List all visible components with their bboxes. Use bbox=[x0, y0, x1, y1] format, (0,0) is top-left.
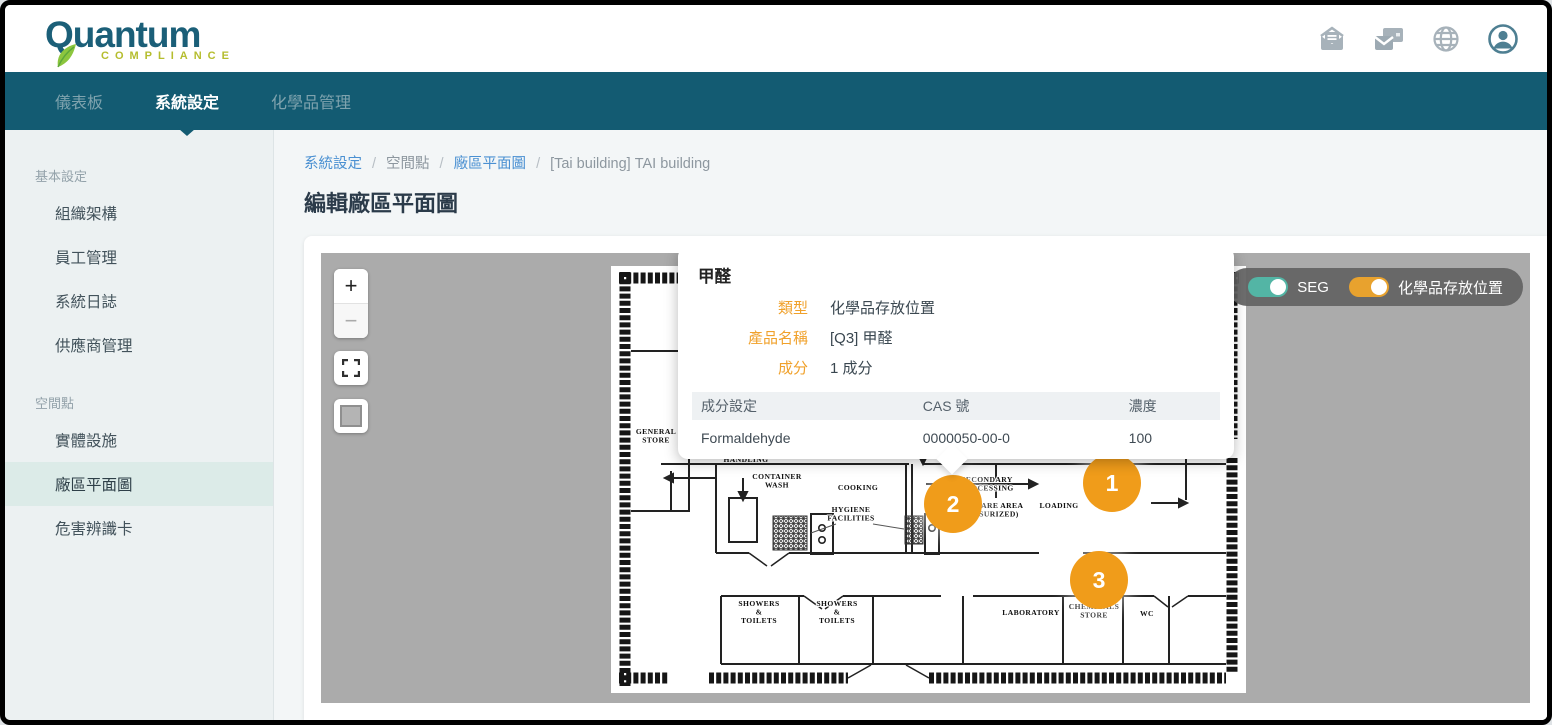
ingredient-table: 成分設定CAS 號濃度 Formaldehyde0000050-00-0100 bbox=[692, 392, 1220, 456]
breadcrumb-item: 空間點 bbox=[386, 156, 430, 172]
map-marker-1[interactable]: 1 bbox=[1083, 454, 1141, 512]
sidebar-item-組織架構[interactable]: 組織架構 bbox=[5, 191, 273, 235]
account-icon[interactable] bbox=[1487, 23, 1519, 55]
top-header: Quantum COMPLIANCE bbox=[5, 5, 1547, 72]
breadcrumb-item[interactable]: 系統設定 bbox=[304, 156, 362, 172]
main-content: 系統設定/空間點/廠區平面圖/[Tai building] TAI buildi… bbox=[274, 130, 1547, 720]
quantum-logo[interactable]: Quantum COMPLIANCE bbox=[45, 16, 235, 62]
zoom-in-button[interactable]: + bbox=[334, 269, 368, 303]
breadcrumb-separator: / bbox=[440, 156, 444, 172]
breadcrumb-separator: / bbox=[372, 156, 376, 172]
popup-field-label: 產品名稱 bbox=[698, 327, 808, 348]
table-header-cell: CAS 號 bbox=[914, 396, 1120, 416]
table-cell: 100 bbox=[1120, 430, 1220, 446]
toggle-switch[interactable] bbox=[1349, 277, 1389, 297]
layer-toggle-化學品存放位置[interactable]: 化學品存放位置 bbox=[1349, 277, 1503, 298]
room-label: COOKING bbox=[838, 483, 878, 492]
popup-field-value: 1 成分 bbox=[830, 357, 1220, 378]
globe-icon[interactable] bbox=[1431, 24, 1461, 54]
room-label: CONTAINERWASH bbox=[752, 472, 802, 490]
room-label: SHOWERS&TOILETS bbox=[816, 599, 857, 625]
fullscreen-icon bbox=[342, 359, 360, 377]
sidebar-item-實體設施[interactable]: 實體設施 bbox=[5, 418, 273, 462]
sidebar-item-危害辨識卡[interactable]: 危害辨識卡 bbox=[5, 506, 273, 550]
toggle-switch[interactable] bbox=[1248, 277, 1288, 297]
popup-title: 甲醛 bbox=[698, 263, 1220, 287]
sidebar-section-label: 空間點 bbox=[5, 393, 273, 418]
page-header-band: 系統設定/空間點/廠區平面圖/[Tai building] TAI buildi… bbox=[274, 130, 1547, 218]
nav-item-系統設定[interactable]: 系統設定 bbox=[129, 72, 245, 130]
table-cell: 0000050-00-0 bbox=[914, 430, 1120, 446]
fullscreen-button[interactable] bbox=[334, 351, 368, 385]
room-label: SHOWERS&TOILETS bbox=[738, 599, 779, 625]
popup-field-label: 類型 bbox=[698, 297, 808, 318]
breadcrumb-item: [Tai building] TAI building bbox=[550, 156, 710, 172]
ingredient-table-header: 成分設定CAS 號濃度 bbox=[692, 392, 1220, 420]
map-viewport[interactable]: GENERALSTOREHANDLINGCONTAINERWASHCOOKING… bbox=[321, 253, 1530, 703]
popup-field-value: [Q3] 甲醛 bbox=[830, 327, 1220, 348]
app-window: Quantum COMPLIANCE bbox=[0, 0, 1552, 725]
extent-icon bbox=[340, 405, 362, 427]
breadcrumb: 系統設定/空間點/廠區平面圖/[Tai building] TAI buildi… bbox=[304, 152, 1547, 173]
room-label: GENERALSTORE bbox=[636, 427, 676, 445]
room-label: LOADING bbox=[1039, 501, 1078, 510]
sidebar-item-供應商管理[interactable]: 供應商管理 bbox=[5, 323, 273, 367]
inbox-mail-icon[interactable] bbox=[1317, 24, 1347, 54]
sidebar-item-廠區平面圖[interactable]: 廠區平面圖 bbox=[5, 462, 273, 506]
toggle-label: SEG bbox=[1297, 279, 1329, 296]
breadcrumb-item[interactable]: 廠區平面圖 bbox=[454, 156, 527, 172]
table-header-cell: 濃度 bbox=[1120, 396, 1220, 416]
logo-tagline: COMPLIANCE bbox=[101, 51, 235, 62]
layer-toggle-bar: SEG化學品存放位置 bbox=[1228, 268, 1523, 306]
popup-field-value: 化學品存放位置 bbox=[830, 297, 1220, 318]
sidebar-section-label: 基本設定 bbox=[5, 166, 273, 191]
zoom-control: + − bbox=[334, 269, 368, 338]
table-header-cell: 成分設定 bbox=[692, 396, 914, 416]
room-label: WC bbox=[1140, 609, 1154, 618]
map-card: GENERALSTOREHANDLINGCONTAINERWASHCOOKING… bbox=[304, 236, 1547, 720]
toggle-label: 化學品存放位置 bbox=[1398, 277, 1503, 298]
nav-item-化學品管理[interactable]: 化學品管理 bbox=[245, 72, 377, 130]
zoom-out-button[interactable]: − bbox=[334, 303, 368, 338]
sidebar-item-系統日誌[interactable]: 系統日誌 bbox=[5, 279, 273, 323]
chemical-popup: 甲醛 類型化學品存放位置產品名稱[Q3] 甲醛成分1 成分 成分設定CAS 號濃… bbox=[678, 253, 1234, 459]
mail-card-icon[interactable] bbox=[1373, 24, 1405, 54]
nav-item-儀表板[interactable]: 儀表板 bbox=[29, 72, 129, 130]
map-marker-3[interactable]: 3 bbox=[1070, 551, 1128, 609]
room-label: LABORATORY bbox=[1002, 608, 1060, 617]
sidebar-item-員工管理[interactable]: 員工管理 bbox=[5, 235, 273, 279]
page-title: 編輯廠區平面圖 bbox=[304, 186, 1547, 218]
table-cell: Formaldehyde bbox=[692, 430, 914, 446]
room-label: HYGIENEFACILITIES bbox=[827, 505, 874, 523]
popup-field-label: 成分 bbox=[698, 357, 808, 378]
sidebar: 基本設定組織架構員工管理系統日誌供應商管理空間點實體設施廠區平面圖危害辨識卡 bbox=[5, 130, 274, 720]
leaf-icon bbox=[55, 42, 77, 68]
layer-toggle-SEG[interactable]: SEG bbox=[1248, 277, 1329, 297]
table-row: Formaldehyde0000050-00-0100 bbox=[692, 420, 1220, 456]
main-nav: 儀表板系統設定化學品管理 bbox=[5, 72, 1547, 130]
extent-button[interactable] bbox=[334, 399, 368, 433]
map-marker-2[interactable]: 2 bbox=[924, 475, 982, 533]
breadcrumb-separator: / bbox=[536, 156, 540, 172]
